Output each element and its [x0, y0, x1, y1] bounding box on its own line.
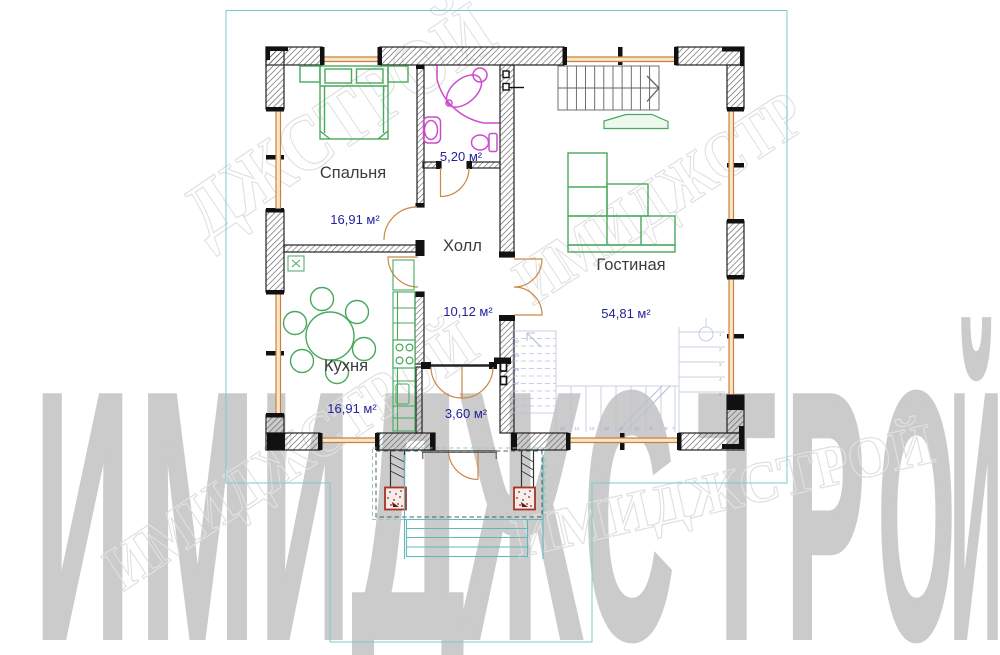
svg-text:13: 13: [589, 426, 595, 431]
svg-text:20: 20: [514, 339, 520, 344]
svg-text:Гостиная: Гостиная: [596, 256, 665, 274]
svg-text:17: 17: [514, 381, 520, 386]
svg-text:Спальня: Спальня: [320, 164, 386, 182]
svg-text:16,91 м²: 16,91 м²: [327, 401, 377, 416]
svg-text:10,12 м²: 10,12 м²: [443, 304, 493, 319]
svg-text:16,91 м²: 16,91 м²: [330, 212, 380, 227]
svg-text:3,60 м²: 3,60 м²: [445, 406, 488, 421]
svg-text:12: 12: [604, 426, 610, 431]
svg-text:10: 10: [634, 426, 640, 431]
svg-text:15: 15: [560, 426, 566, 431]
svg-text:Й: Й: [950, 320, 1000, 655]
svg-text:18: 18: [514, 367, 520, 372]
svg-text:11: 11: [619, 426, 624, 431]
svg-text:Кухня: Кухня: [324, 357, 368, 375]
svg-text:54,81 м²: 54,81 м²: [601, 306, 651, 321]
svg-text:5,20 м²: 5,20 м²: [440, 149, 483, 164]
svg-text:О: О: [878, 321, 955, 655]
svg-text:И: И: [35, 321, 130, 655]
svg-text:Холл: Холл: [443, 237, 482, 255]
svg-text:19: 19: [514, 353, 520, 358]
svg-text:14: 14: [574, 426, 580, 431]
